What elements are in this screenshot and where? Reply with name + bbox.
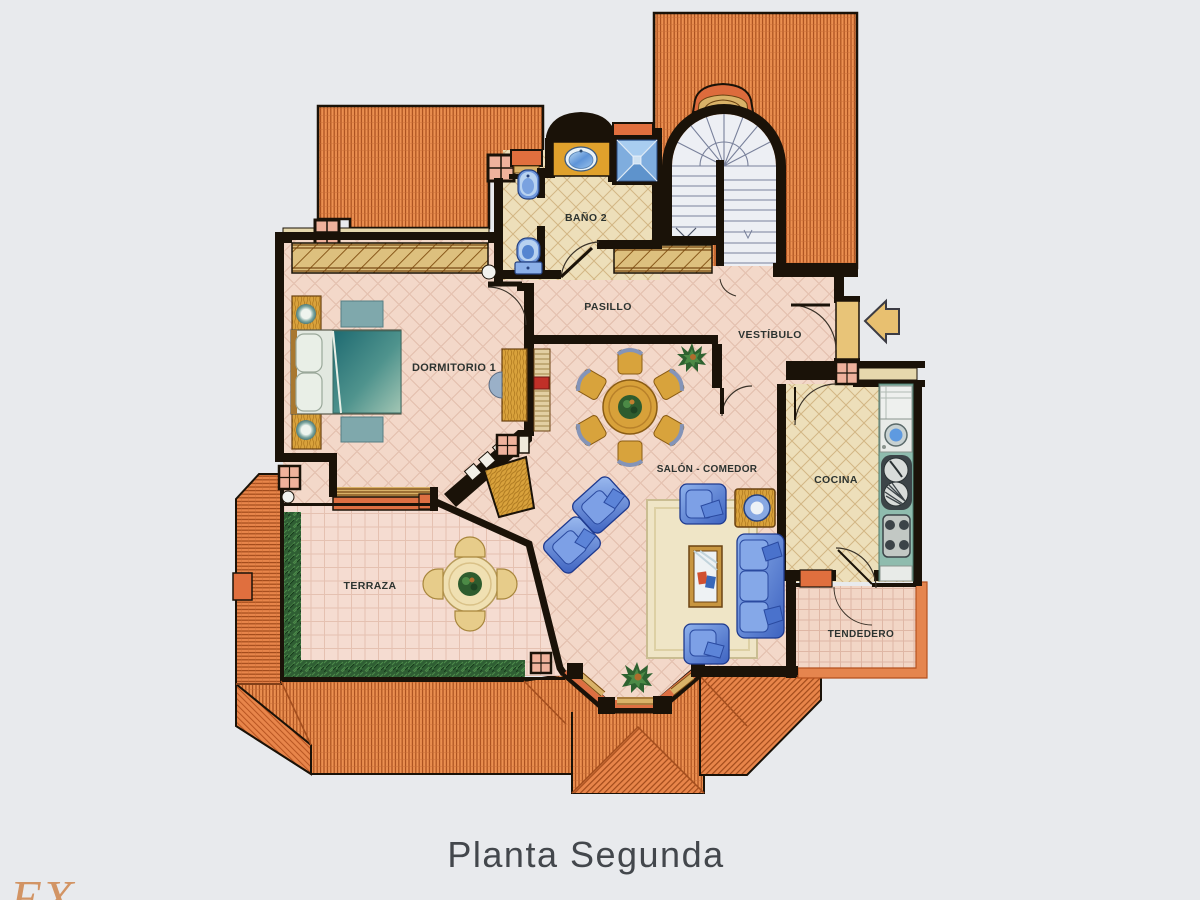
svg-text:TENDEDERO: TENDEDERO	[828, 629, 894, 640]
svg-text:SALÓN - COMEDOR: SALÓN - COMEDOR	[657, 462, 758, 475]
svg-text:COCINA: COCINA	[814, 474, 858, 486]
svg-text:DORMITORIO 1: DORMITORIO 1	[412, 362, 496, 374]
svg-text:Planta Segunda: Planta Segunda	[447, 834, 724, 875]
svg-text:TERRAZA: TERRAZA	[344, 580, 397, 592]
svg-text:PASILLO: PASILLO	[584, 301, 632, 313]
svg-text:VESTÍBULO: VESTÍBULO	[738, 328, 802, 341]
svg-text:BAÑO 2: BAÑO 2	[565, 211, 607, 224]
svg-text:EX: EX	[9, 871, 76, 900]
